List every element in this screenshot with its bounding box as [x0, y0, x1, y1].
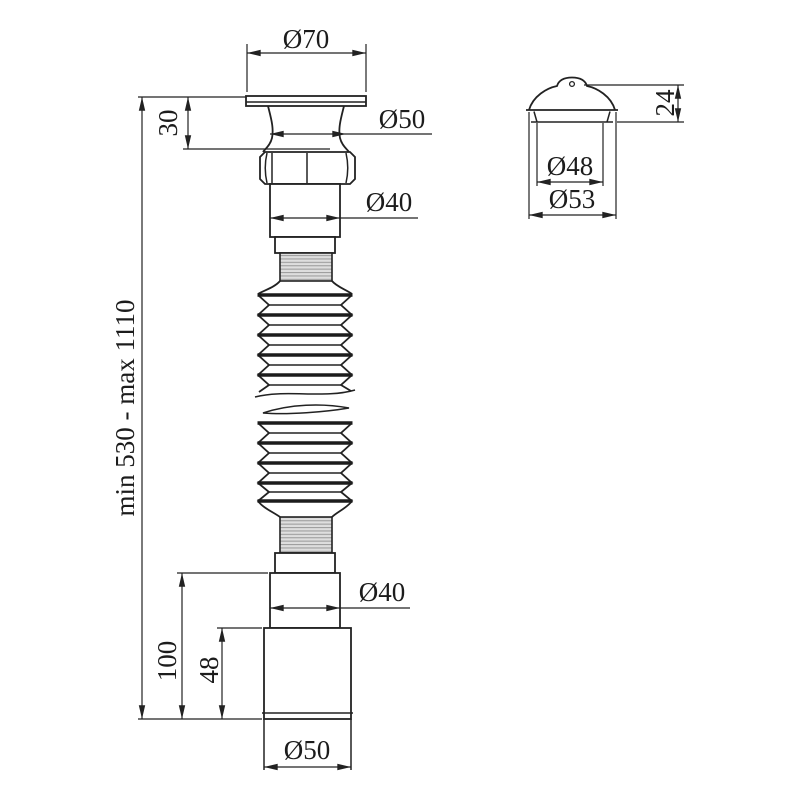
- dim-label-top-diameter: Ø70: [283, 24, 330, 54]
- dim-label-lower-pipe-diameter: Ø40: [359, 577, 406, 607]
- cap-knob-hole: [570, 82, 575, 87]
- bellows-upper: [258, 295, 353, 392]
- hex-nut: [260, 152, 355, 184]
- dim-cup-diameter: Ø50: [270, 104, 432, 134]
- dim-label-cup-diameter: Ø50: [379, 104, 426, 134]
- bellows-lower: [258, 423, 353, 517]
- upper-pipe: [270, 184, 340, 237]
- dim-label-outlet-diameter: Ø50: [284, 735, 331, 765]
- sink-flange: [246, 96, 366, 106]
- dim-label-cap-inner-diameter: Ø48: [547, 151, 594, 181]
- upper-collar: [275, 237, 335, 253]
- lower-pipe: [270, 573, 340, 628]
- drawing-svg: Ø70 30 Ø50 Ø40 min 530 - max 1110: [0, 0, 800, 800]
- lower-thread-section: [280, 517, 332, 553]
- dimension-annotations: Ø70 30 Ø50 Ø40 min 530 - max 1110: [110, 24, 684, 767]
- main-siphon-view: [246, 96, 366, 770]
- dim-label-outlet-body-height: 48: [194, 657, 224, 684]
- dim-outlet-total-height: 100: [152, 573, 268, 719]
- dim-outlet-diameter: Ø50: [264, 735, 351, 767]
- dim-cap-inner-diameter: Ø48: [537, 151, 603, 182]
- dim-top-diameter: Ø70: [247, 24, 366, 92]
- dim-label-upper-pipe-diameter: Ø40: [366, 187, 413, 217]
- upper-thread-section: [280, 253, 332, 281]
- lower-collar: [275, 553, 335, 573]
- dim-label-cup-height: 30: [153, 110, 183, 137]
- dim-total-length: min 530 - max 1110: [110, 97, 142, 719]
- dim-label-cap-outer-diameter: Ø53: [549, 184, 596, 214]
- technical-drawing-page: Ø70 30 Ø50 Ø40 min 530 - max 1110: [0, 0, 800, 800]
- bellows-top-flare-left: [258, 281, 280, 294]
- dim-label-cap-height: 24: [650, 89, 680, 117]
- strainer-bowl: [263, 106, 349, 152]
- dim-cap-outer-diameter: Ø53: [529, 184, 616, 215]
- bellows-top-flare-right: [332, 281, 352, 294]
- cap-view: [526, 78, 618, 123]
- dim-label-outlet-total-height: 100: [152, 641, 182, 682]
- break-symbol: [255, 390, 355, 414]
- dim-outlet-body-height: 48: [194, 628, 262, 719]
- dim-label-total-length: min 530 - max 1110: [110, 300, 140, 517]
